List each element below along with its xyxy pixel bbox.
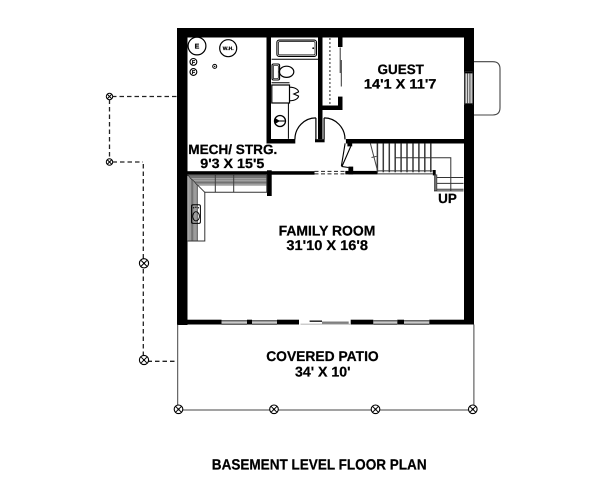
svg-text:FAMILY ROOM: FAMILY ROOM (279, 222, 376, 238)
svg-text:14'1 X 11'7: 14'1 X 11'7 (364, 77, 437, 92)
svg-text:E: E (195, 44, 200, 51)
svg-text:GUEST: GUEST (378, 62, 425, 77)
svg-text:34' X 10': 34' X 10' (295, 364, 351, 380)
svg-text:31'10 X 16'8: 31'10 X 16'8 (286, 237, 368, 253)
svg-text:MECH/ STRG.: MECH/ STRG. (188, 142, 277, 157)
svg-text:W.H.: W.H. (223, 46, 234, 52)
svg-text:9'3 X 15'5: 9'3 X 15'5 (200, 156, 265, 171)
svg-text:BASEMENT LEVEL FLOOR PLAN: BASEMENT LEVEL FLOOR PLAN (212, 458, 427, 474)
svg-text:COVERED PATIO: COVERED PATIO (266, 348, 379, 364)
svg-text:UP: UP (438, 191, 457, 206)
